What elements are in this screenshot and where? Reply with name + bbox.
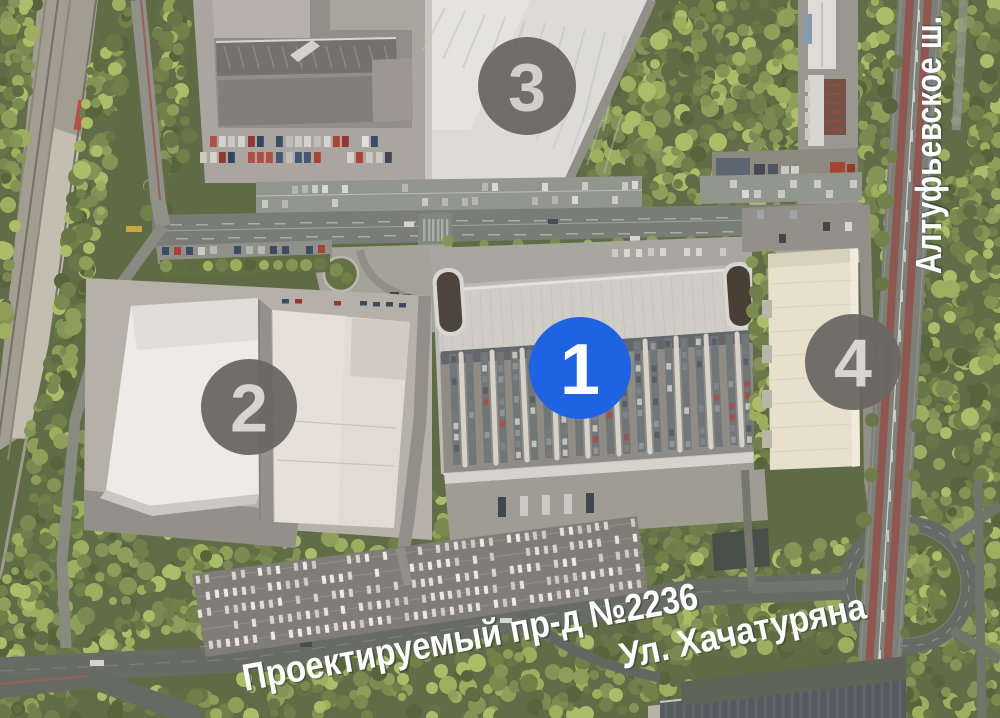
svg-text:2: 2: [230, 370, 268, 446]
svg-text:4: 4: [834, 325, 872, 401]
svg-text:1: 1: [560, 330, 600, 410]
svg-text:Алтуфьевское ш.: Алтуфьевское ш.: [908, 16, 949, 274]
svg-text:3: 3: [508, 49, 546, 125]
